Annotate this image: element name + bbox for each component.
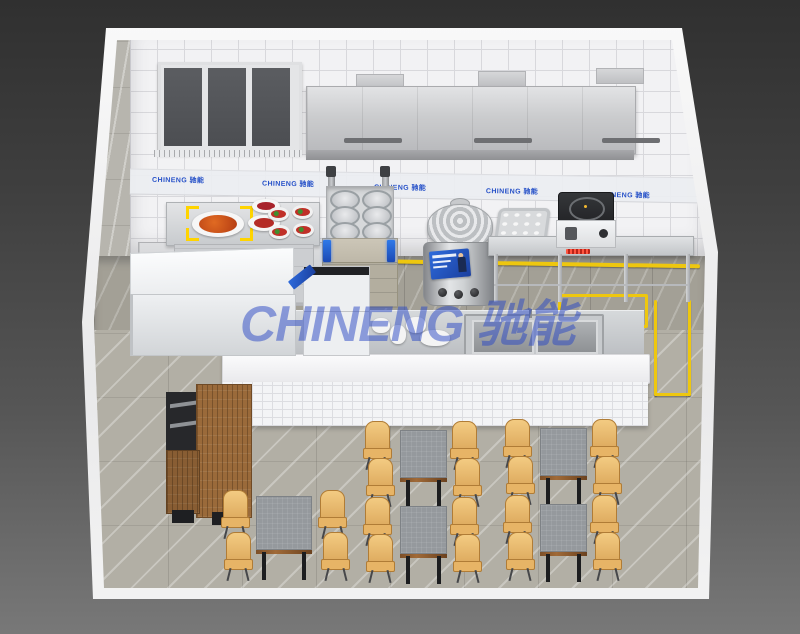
kitchen-render-scene: CHINENG 驰能CHINENG 驰能CHINENG 驰能CHINENG 驰能… [0,0,800,634]
table-leg [546,554,550,582]
table-leg [406,556,410,584]
chair-seat [318,517,347,528]
table-leg [437,556,441,584]
table-leg [546,478,550,506]
dining-table [256,496,312,554]
chair-seat [453,561,482,572]
chair-seat [321,559,350,570]
chair [220,490,250,538]
chair [453,534,483,582]
table-top [540,428,587,476]
dining-table [540,504,587,556]
chair [365,534,395,582]
chair [505,532,535,580]
table-top [256,496,312,550]
chair-seat [453,485,482,496]
brand-watermark: CHINENG 驰能 [240,284,574,356]
table-leg [437,480,441,508]
table-leg [302,552,306,580]
chair [593,532,623,580]
table-leg [406,480,410,508]
table-leg [577,478,581,506]
chair-seat [593,483,622,494]
table-leg [577,554,581,582]
dining-table [540,428,587,480]
chair [223,532,253,580]
table-top [400,506,447,554]
dining-table [400,506,447,558]
room-interior: CHINENG 驰能CHINENG 驰能CHINENG 驰能CHINENG 驰能… [0,0,800,634]
chair-seat [593,559,622,570]
table-leg [262,552,266,580]
table-top [400,430,447,478]
chair [321,532,351,580]
table-top [540,504,587,552]
chair [318,490,348,538]
dining-table [400,430,447,482]
